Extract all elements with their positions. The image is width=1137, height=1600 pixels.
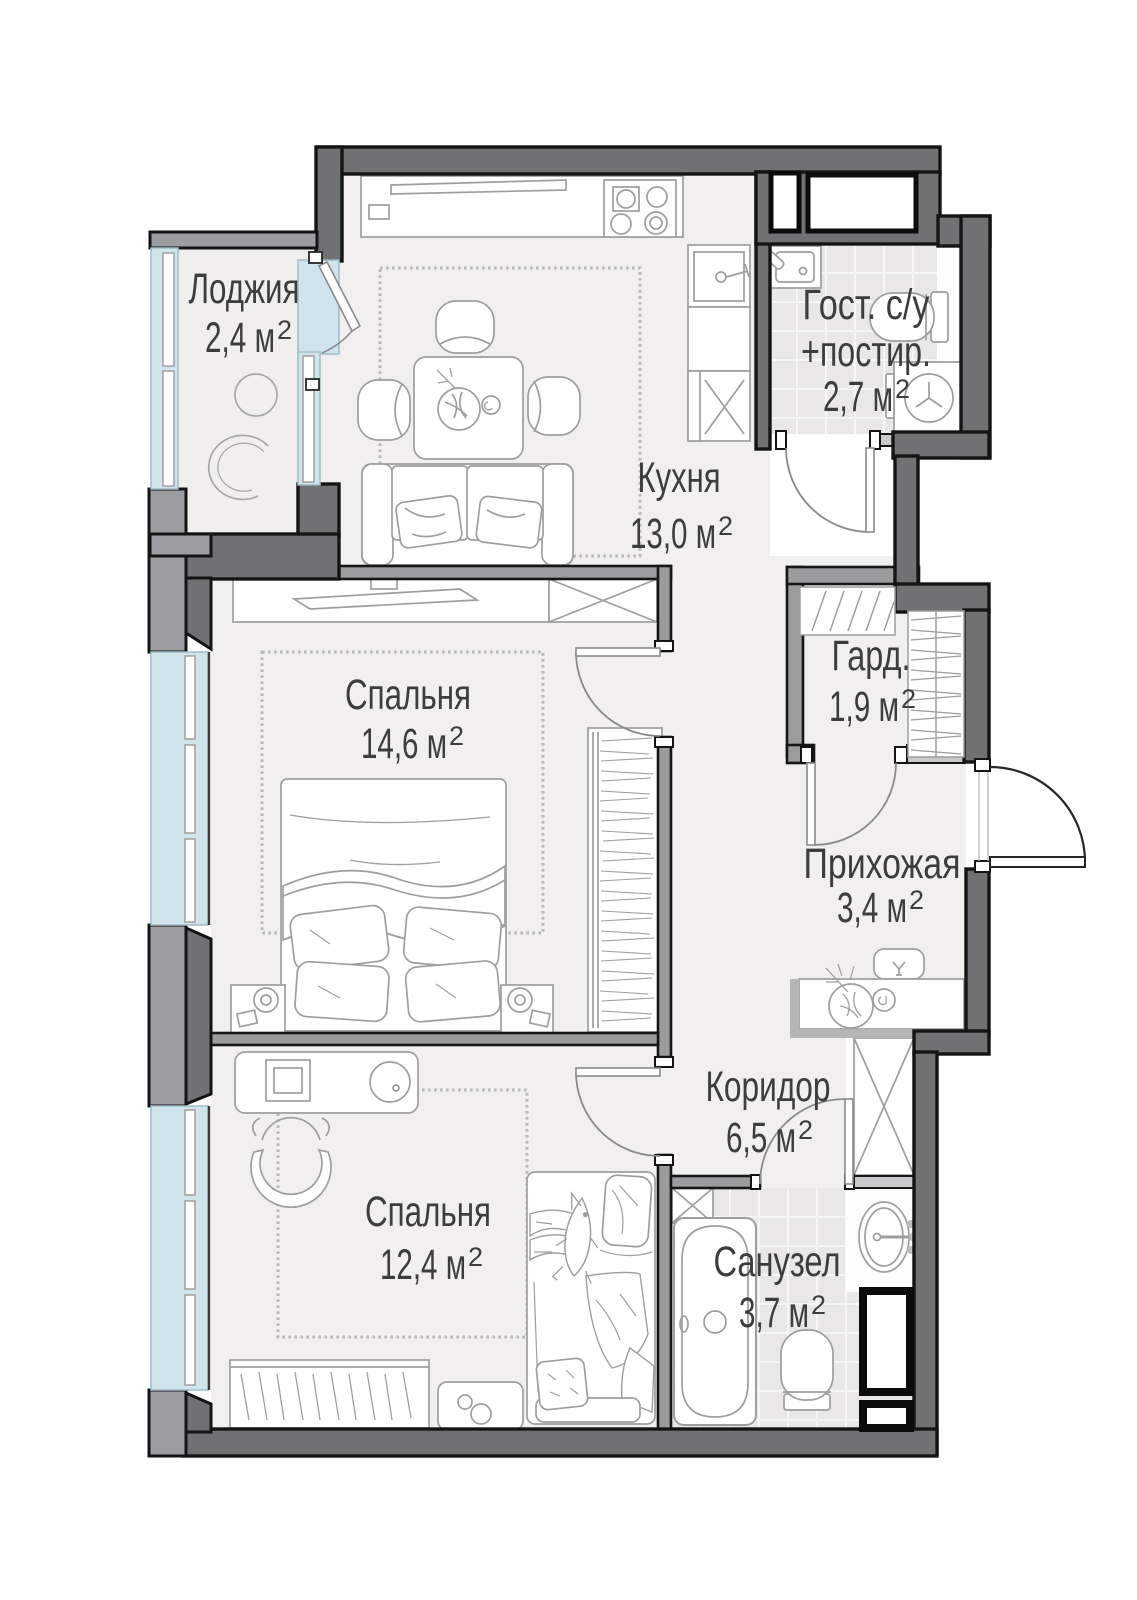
- svg-text:Коридор: Коридор: [706, 1063, 831, 1111]
- svg-text:+постир.: +постир.: [801, 328, 931, 376]
- svg-text:Прихожая: Прихожая: [804, 840, 961, 888]
- svg-text:2,4 м: 2,4 м: [205, 314, 275, 362]
- svg-text:2: 2: [901, 684, 916, 714]
- svg-text:2: 2: [468, 1242, 483, 1272]
- svg-text:2: 2: [449, 721, 464, 751]
- svg-text:Кухня: Кухня: [638, 454, 721, 502]
- svg-text:2: 2: [718, 511, 733, 541]
- svg-text:2,7 м: 2,7 м: [823, 373, 893, 421]
- svg-text:13,0 м: 13,0 м: [630, 510, 716, 558]
- svg-text:Спальня: Спальня: [345, 671, 471, 719]
- svg-text:3,7 м: 3,7 м: [739, 1289, 809, 1337]
- svg-text:6,5 м: 6,5 м: [726, 1114, 796, 1162]
- svg-text:3,4 м: 3,4 м: [837, 884, 907, 932]
- svg-text:Лоджия: Лоджия: [189, 265, 300, 313]
- svg-text:14,6 м: 14,6 м: [361, 720, 447, 768]
- svg-text:2: 2: [277, 315, 292, 345]
- svg-text:Спальня: Спальня: [365, 1188, 491, 1236]
- svg-text:Санузел: Санузел: [714, 1238, 841, 1286]
- svg-text:Гост. с/у: Гост. с/у: [803, 281, 930, 329]
- svg-text:12,4 м: 12,4 м: [380, 1241, 466, 1289]
- svg-text:2: 2: [909, 885, 924, 915]
- svg-text:2: 2: [895, 374, 910, 404]
- svg-text:Гард.: Гард.: [832, 632, 911, 680]
- svg-text:1,9 м: 1,9 м: [829, 683, 899, 731]
- svg-text:2: 2: [798, 1115, 813, 1145]
- svg-text:2: 2: [811, 1290, 826, 1320]
